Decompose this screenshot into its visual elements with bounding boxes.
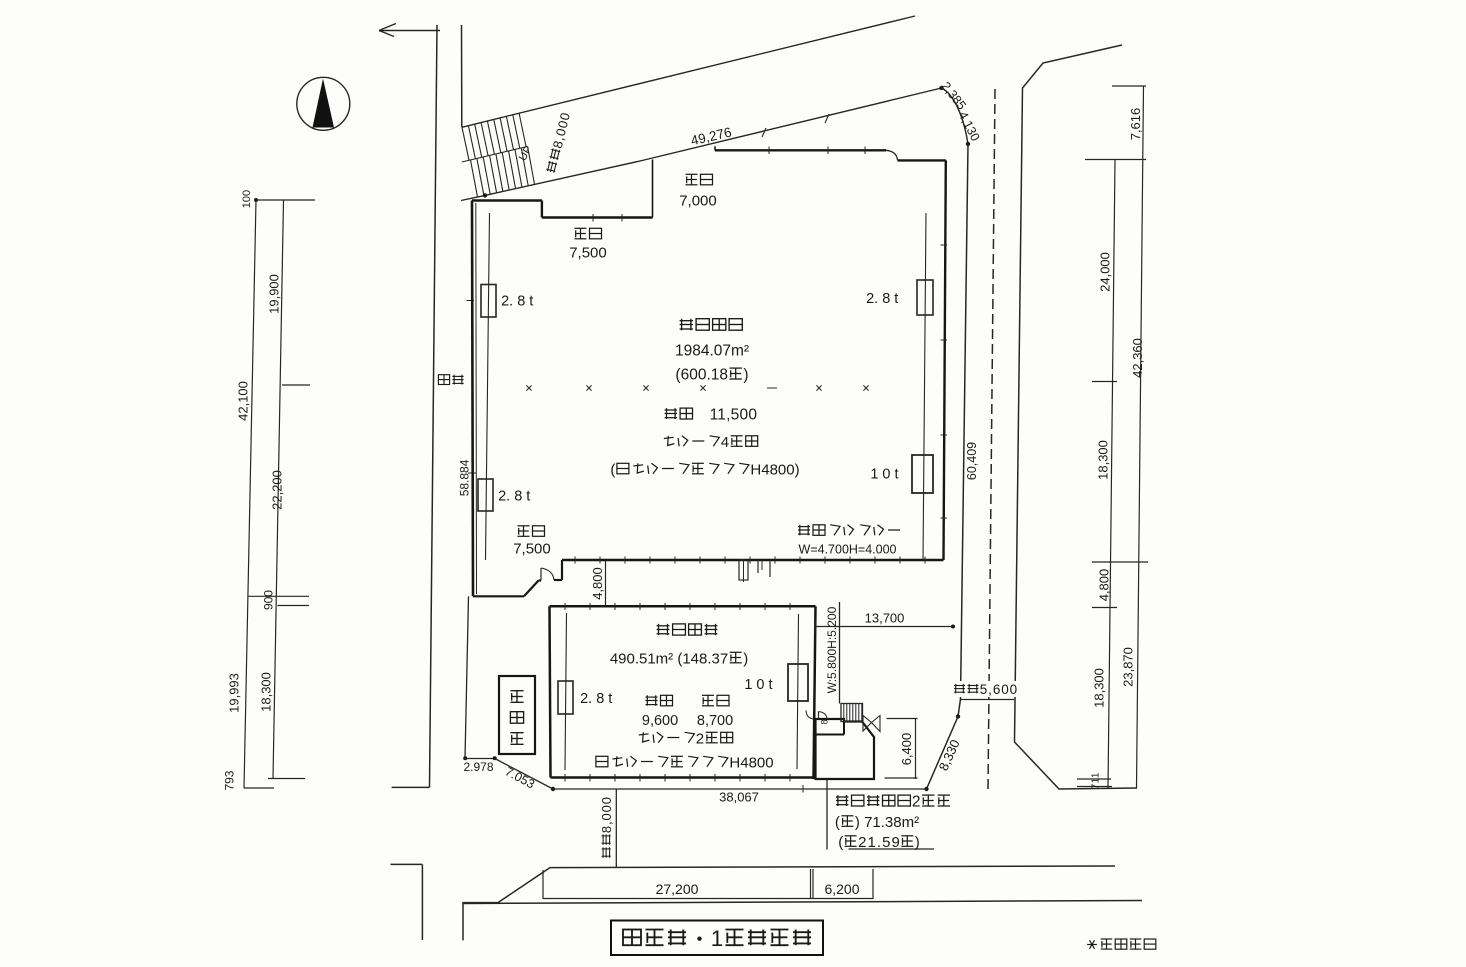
svg-text:2: 2 xyxy=(696,730,704,747)
svg-text:38,067: 38,067 xyxy=(719,790,759,805)
svg-text:2. 8 t: 2. 8 t xyxy=(866,291,898,307)
svg-text:8,700: 8,700 xyxy=(697,713,733,729)
svg-text:22,200: 22,200 xyxy=(270,470,285,510)
svg-text:4,800: 4,800 xyxy=(590,567,605,600)
svg-text:711: 711 xyxy=(1091,772,1102,789)
svg-text:5,600: 5,600 xyxy=(980,682,1018,697)
svg-text:(: ( xyxy=(610,461,615,478)
svg-text:58.884: 58.884 xyxy=(457,459,471,496)
svg-text:W:5.800H:5.200: W:5.800H:5.200 xyxy=(825,606,839,693)
svg-text:(: ( xyxy=(835,814,840,831)
svg-text:1: 1 xyxy=(711,926,724,951)
svg-text:4: 4 xyxy=(721,434,729,451)
svg-text:42,360: 42,360 xyxy=(1130,338,1145,378)
svg-text:11,500: 11,500 xyxy=(710,407,758,424)
svg-text:793: 793 xyxy=(222,770,236,790)
svg-text:7,616: 7,616 xyxy=(1128,108,1143,141)
svg-text:900: 900 xyxy=(261,590,275,610)
svg-text:8: 8 xyxy=(820,719,830,724)
svg-text:27,200: 27,200 xyxy=(656,881,699,897)
svg-text:H4800): H4800) xyxy=(750,461,799,478)
svg-text:60,409: 60,409 xyxy=(965,442,979,480)
svg-text:7,500: 7,500 xyxy=(569,244,607,261)
svg-text:18,300: 18,300 xyxy=(1096,440,1111,480)
svg-text:4,800: 4,800 xyxy=(1097,569,1112,602)
svg-text:): ) xyxy=(743,650,748,667)
svg-text:7,000: 7,000 xyxy=(679,192,717,209)
svg-text:6,400: 6,400 xyxy=(899,733,914,766)
svg-text:): ) xyxy=(743,367,748,384)
svg-text:H4800: H4800 xyxy=(729,754,773,771)
svg-text:100: 100 xyxy=(241,190,253,208)
svg-text:1 0 t: 1 0 t xyxy=(870,467,898,483)
svg-text:42,100: 42,100 xyxy=(236,381,251,421)
svg-text:7,500: 7,500 xyxy=(513,540,551,557)
svg-text:1984.07m²: 1984.07m² xyxy=(675,343,749,360)
svg-text:2.978: 2.978 xyxy=(464,760,494,774)
svg-text:) 71.38m²: ) 71.38m² xyxy=(855,814,919,831)
svg-text:8,000: 8,000 xyxy=(599,797,614,833)
svg-text:9,600: 9,600 xyxy=(642,713,678,729)
svg-text:2. 8 t: 2. 8 t xyxy=(580,691,612,707)
svg-text:W=4.700H=4.000: W=4.700H=4.000 xyxy=(799,543,897,557)
svg-text:24,000: 24,000 xyxy=(1098,252,1113,292)
svg-text:18,300: 18,300 xyxy=(259,672,274,712)
svg-text:23,870: 23,870 xyxy=(1121,647,1136,687)
svg-text:6,200: 6,200 xyxy=(825,881,860,897)
svg-text:490.51m² (148.37: 490.51m² (148.37 xyxy=(610,650,728,667)
svg-text:(: ( xyxy=(838,834,843,851)
svg-text:13,700: 13,700 xyxy=(865,611,905,626)
svg-text:2: 2 xyxy=(912,794,921,811)
svg-text:2. 8 t: 2. 8 t xyxy=(498,489,530,505)
svg-text:19,900: 19,900 xyxy=(267,274,282,314)
svg-text:(600.18: (600.18 xyxy=(675,367,728,384)
svg-text:1 0 t: 1 0 t xyxy=(744,677,772,693)
svg-text:18,300: 18,300 xyxy=(1092,668,1107,708)
svg-text:2. 8 t: 2. 8 t xyxy=(501,294,533,310)
svg-text:19,993: 19,993 xyxy=(227,673,242,713)
